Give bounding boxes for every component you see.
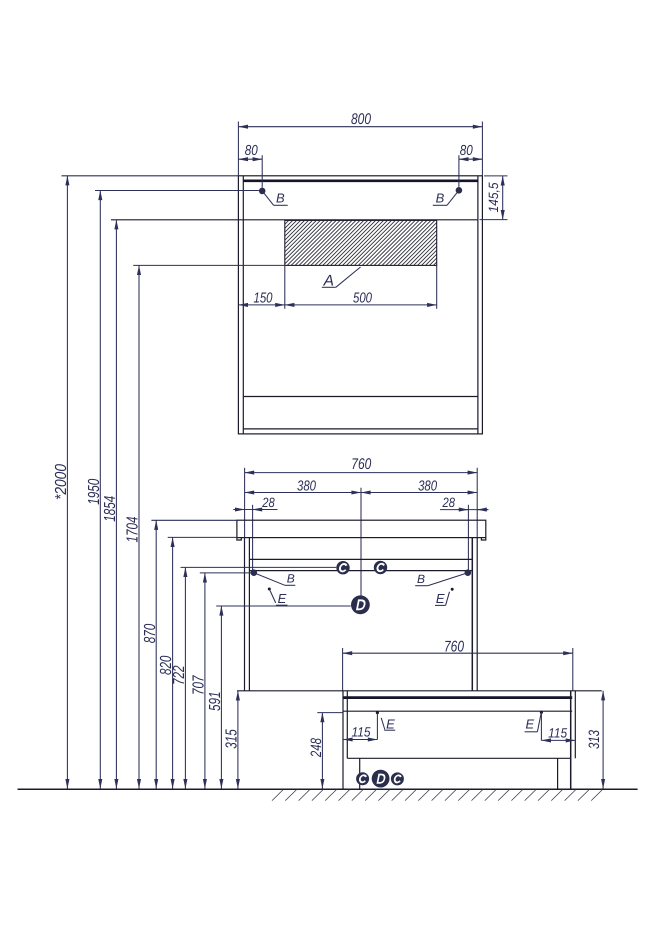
svg-text:380: 380 [297,478,316,494]
svg-text:115: 115 [548,725,567,740]
svg-text:*2000: *2000 [53,464,70,500]
svg-text:150: 150 [254,290,273,306]
svg-text:E: E [278,591,287,606]
svg-text:1950: 1950 [86,479,103,505]
svg-text:707: 707 [191,675,208,695]
svg-text:248: 248 [308,738,325,758]
svg-text:E: E [436,591,445,606]
svg-text:B: B [276,190,285,205]
svg-text:591: 591 [207,691,224,711]
svg-text:28: 28 [442,495,456,510]
svg-text:80: 80 [460,143,473,159]
svg-text:E: E [386,717,395,732]
svg-text:380: 380 [418,478,437,494]
svg-text:313: 313 [586,730,603,749]
svg-text:145,5: 145,5 [486,182,501,212]
svg-text:760: 760 [444,638,464,655]
svg-text:80: 80 [245,143,258,159]
svg-text:28: 28 [261,495,275,510]
svg-text:B: B [436,190,445,205]
svg-text:870: 870 [142,624,159,644]
svg-text:B: B [417,572,425,586]
svg-text:1704: 1704 [125,516,142,542]
svg-text:500: 500 [353,290,372,306]
svg-text:760: 760 [351,456,371,473]
svg-text:1854: 1854 [102,496,119,522]
svg-text:115: 115 [352,725,371,740]
svg-text:722: 722 [171,665,188,685]
svg-text:E: E [525,717,534,732]
svg-text:315: 315 [224,729,241,749]
svg-text:B: B [287,572,295,586]
svg-text:800: 800 [351,111,371,128]
